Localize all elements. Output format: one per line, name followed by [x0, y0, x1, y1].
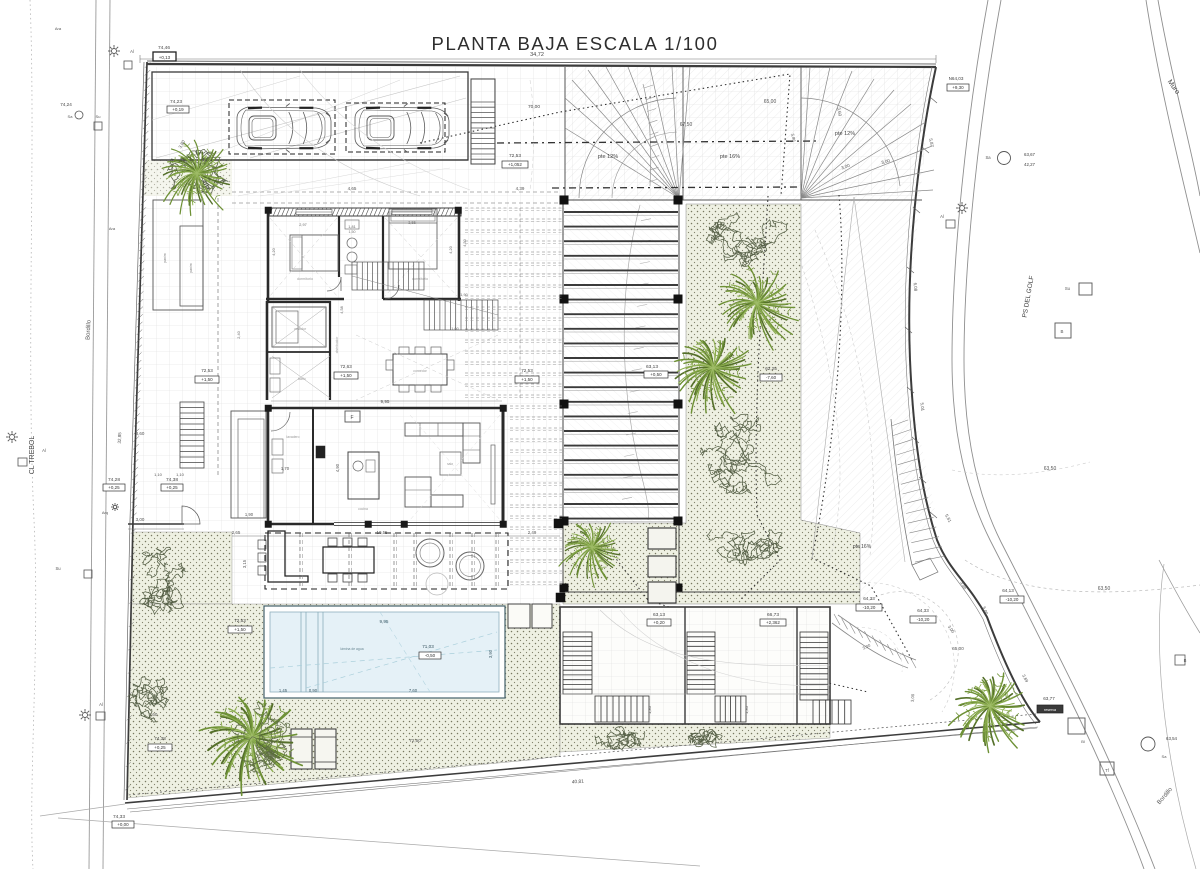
svg-text:10,55: 10,55	[377, 530, 389, 535]
svg-text:-7,60: -7,60	[766, 375, 777, 380]
svg-text:comedor: comedor	[413, 369, 427, 373]
svg-text:Ara: Ara	[109, 226, 116, 231]
svg-text:74,38: 74,38	[166, 477, 178, 483]
svg-text:74,23: 74,23	[170, 99, 182, 105]
svg-text:reserva: reserva	[1044, 708, 1056, 712]
svg-text:Al: Al	[940, 214, 944, 219]
svg-text:4,20: 4,20	[449, 246, 453, 253]
svg-text:0,90: 0,90	[309, 688, 318, 693]
svg-text:74,46: 74,46	[158, 45, 170, 51]
svg-text:40,81: 40,81	[572, 778, 585, 785]
svg-text:+1,50: +1,50	[340, 373, 352, 378]
svg-text:Bl: Bl	[1081, 739, 1085, 744]
svg-text:1,10: 1,10	[154, 472, 163, 477]
svg-text:63,54: 63,54	[1166, 736, 1178, 741]
svg-text:lavadero: lavadero	[286, 435, 299, 439]
svg-text:-10,20: -10,20	[863, 605, 876, 610]
svg-text:71,03: 71,03	[422, 644, 434, 649]
svg-text:2,40: 2,40	[237, 331, 241, 338]
svg-text:PLANTA BAJA ESCALA 1/100: PLANTA BAJA ESCALA 1/100	[432, 33, 719, 54]
svg-text:63,77: 63,77	[1043, 696, 1055, 701]
svg-text:+0,50: +0,50	[650, 372, 662, 377]
svg-text:Su: Su	[1065, 286, 1071, 291]
svg-text:9,95: 9,95	[381, 399, 390, 404]
svg-text:64,13: 64,13	[1002, 588, 1014, 593]
svg-text:+0,25: +0,25	[154, 745, 166, 750]
svg-text:pte 16%: pte 16%	[720, 154, 740, 160]
svg-text:Su: Su	[55, 566, 61, 571]
svg-text:2,65: 2,65	[232, 530, 241, 535]
svg-text:1,50: 1,50	[349, 230, 356, 234]
svg-text:1,90: 1,90	[460, 293, 467, 297]
svg-text:dormitorio: dormitorio	[297, 277, 313, 281]
svg-text:3,00: 3,00	[136, 517, 145, 522]
svg-text:Al: Al	[130, 49, 134, 54]
svg-text:1,45: 1,45	[279, 688, 288, 693]
svg-text:Al: Al	[42, 448, 46, 453]
svg-text:1,90: 1,90	[245, 512, 254, 517]
svg-text:4,90: 4,90	[335, 463, 340, 472]
svg-text:1,30: 1,30	[647, 705, 652, 714]
svg-text:+1,052: +1,052	[508, 162, 522, 167]
svg-text:2,97: 2,97	[299, 223, 306, 227]
svg-text:+9,30: +9,30	[952, 85, 964, 90]
svg-text:pte 16%: pte 16%	[853, 544, 872, 550]
svg-text:1,81: 1,81	[348, 225, 355, 229]
svg-text:+1,50: +1,50	[234, 627, 246, 632]
svg-text:74,28: 74,28	[108, 477, 120, 483]
svg-text:+0,00: +0,00	[117, 822, 129, 827]
svg-text:72,53: 72,53	[234, 618, 246, 623]
svg-text:4,65: 4,65	[348, 186, 357, 191]
svg-text:pte 12%: pte 12%	[598, 154, 618, 160]
svg-text:64,33: 64,33	[863, 596, 875, 601]
svg-text:1,70: 1,70	[281, 466, 290, 471]
svg-text:cocina: cocina	[358, 507, 368, 511]
svg-text:3,15: 3,15	[242, 559, 247, 568]
svg-text:63,50: 63,50	[1098, 586, 1111, 592]
svg-text:Su: Su	[96, 114, 101, 119]
svg-text:3,90: 3,90	[488, 649, 493, 658]
svg-text:6,08: 6,08	[913, 282, 919, 292]
svg-text:Al: Al	[99, 702, 103, 707]
svg-text:65,00: 65,00	[764, 99, 777, 105]
svg-text:63,13: 63,13	[653, 612, 665, 618]
svg-text:F: F	[350, 415, 353, 421]
svg-text:4,39: 4,39	[516, 186, 525, 191]
svg-text:63,50: 63,50	[1044, 466, 1057, 472]
svg-text:66,73: 66,73	[767, 612, 779, 618]
svg-text:-10,20: -10,20	[917, 617, 930, 622]
svg-text:1,00: 1,00	[451, 327, 458, 331]
svg-text:42,27: 42,27	[1024, 162, 1036, 167]
svg-text:1,10: 1,10	[176, 472, 185, 477]
svg-text:Ara: Ara	[55, 26, 62, 31]
svg-text:62,25: 62,25	[765, 366, 777, 371]
svg-text:74,33: 74,33	[113, 814, 125, 820]
svg-text:3,60: 3,60	[136, 431, 145, 436]
svg-text:72,50: 72,50	[409, 738, 421, 743]
svg-text:4,58: 4,58	[340, 306, 344, 313]
svg-text:pte 12%: pte 12%	[835, 131, 855, 137]
svg-text:-10,20: -10,20	[1006, 597, 1019, 602]
svg-text:74,38: 74,38	[154, 736, 166, 741]
svg-text:distribuidor: distribuidor	[335, 336, 339, 353]
svg-text:63,67: 63,67	[1024, 152, 1036, 157]
svg-text:72,63: 72,63	[340, 364, 352, 369]
svg-text:7,60: 7,60	[409, 688, 418, 693]
svg-text:baño: baño	[298, 377, 306, 381]
svg-text:63,13: 63,13	[646, 364, 658, 370]
svg-text:-0,50: -0,50	[425, 653, 436, 658]
svg-text:+0,13: +0,13	[159, 55, 171, 60]
svg-text:+0,20: +0,20	[653, 620, 665, 625]
svg-text:lámina de agua: lámina de agua	[340, 647, 363, 651]
svg-text:+0,25: +0,25	[166, 485, 178, 490]
svg-text:1,30: 1,30	[744, 705, 749, 714]
svg-text:4,20: 4,20	[272, 248, 276, 255]
svg-text:+0,25: +0,25	[108, 485, 120, 490]
svg-text:B: B	[1061, 329, 1064, 334]
svg-text:N64,03: N64,03	[949, 76, 964, 81]
svg-text:+2,362: +2,362	[766, 620, 780, 625]
svg-text:34,72: 34,72	[530, 52, 544, 58]
svg-text:Sa: Sa	[985, 155, 991, 160]
svg-text:65,00: 65,00	[952, 646, 964, 651]
svg-text:+1,50: +1,50	[521, 377, 533, 382]
svg-text:vestidor: vestidor	[294, 327, 307, 331]
svg-text:74,24: 74,24	[60, 102, 72, 107]
svg-text:4,50: 4,50	[463, 239, 467, 246]
svg-text:dormitorio: dormitorio	[412, 277, 428, 281]
svg-text:9,95: 9,95	[380, 619, 389, 624]
svg-text:pavim: pavim	[163, 253, 167, 262]
svg-text:67,50: 67,50	[680, 122, 693, 128]
svg-text:3,00: 3,00	[910, 693, 916, 702]
svg-text:72,53: 72,53	[509, 153, 521, 159]
svg-text:pavim: pavim	[189, 263, 193, 272]
svg-text:70,00: 70,00	[528, 104, 540, 110]
svg-text:2,49: 2,49	[528, 530, 537, 535]
svg-text:+0,19: +0,19	[172, 107, 184, 112]
svg-text:CL TREBOL: CL TREBOL	[29, 436, 36, 475]
svg-text:72,53: 72,53	[521, 368, 533, 373]
svg-text:72,53: 72,53	[201, 368, 213, 373]
svg-text:Bordillo: Bordillo	[85, 319, 92, 340]
svg-text:Sa: Sa	[1162, 754, 1168, 759]
svg-text:32,85: 32,85	[117, 432, 123, 444]
svg-text:Arq: Arq	[102, 510, 108, 515]
svg-text:Sa: Sa	[68, 114, 74, 119]
svg-text:64,33: 64,33	[917, 608, 929, 613]
svg-text:+1,50: +1,50	[201, 377, 213, 382]
